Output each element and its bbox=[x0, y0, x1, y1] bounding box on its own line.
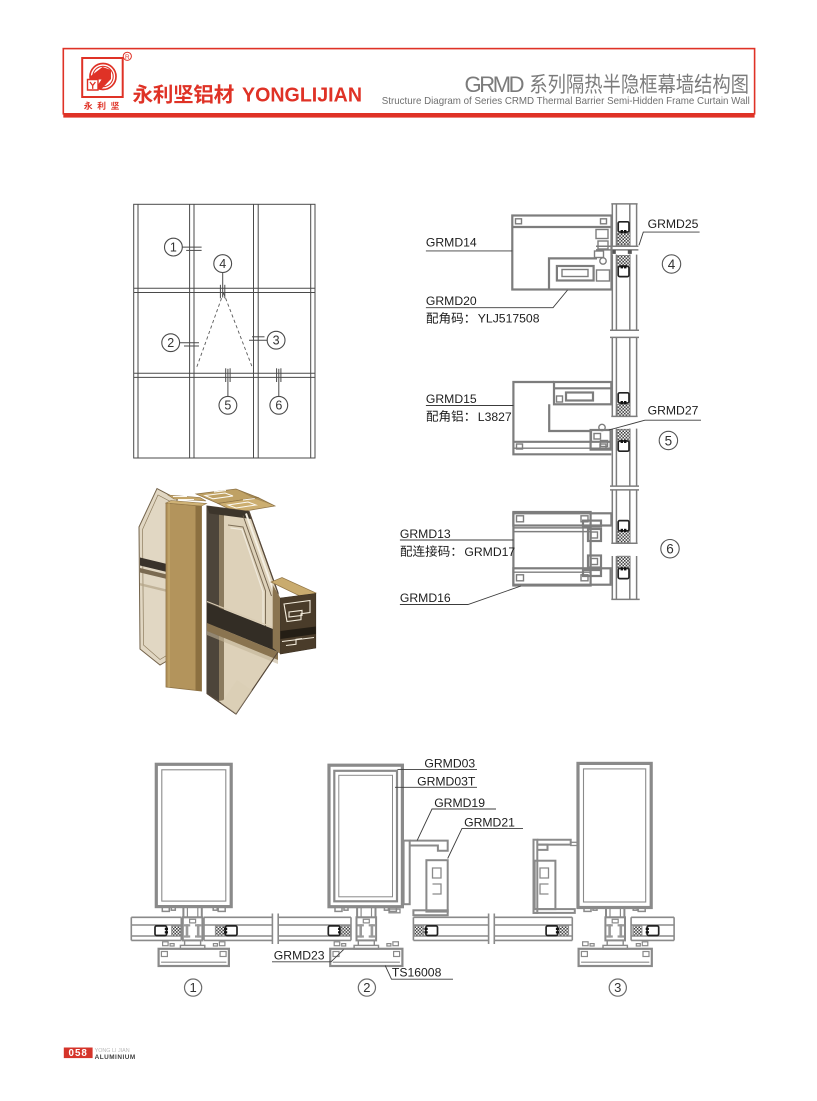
svg-text:1: 1 bbox=[189, 980, 196, 995]
svg-text:1: 1 bbox=[170, 241, 177, 255]
svg-text:GRMD15: GRMD15 bbox=[426, 392, 477, 406]
svg-text:5: 5 bbox=[224, 399, 231, 413]
svg-text:3: 3 bbox=[273, 334, 280, 348]
svg-text:4: 4 bbox=[668, 257, 676, 272]
svg-text:6: 6 bbox=[275, 399, 282, 413]
svg-text:GRMD14: GRMD14 bbox=[426, 235, 477, 249]
svg-text:L3827: L3827 bbox=[478, 410, 512, 424]
svg-text:R: R bbox=[125, 54, 130, 61]
svg-text:2: 2 bbox=[363, 980, 370, 995]
svg-text:YLJ517508: YLJ517508 bbox=[478, 312, 540, 326]
svg-text:GRMD25: GRMD25 bbox=[648, 217, 699, 231]
svg-text:3: 3 bbox=[614, 980, 621, 995]
svg-text:4: 4 bbox=[219, 257, 226, 271]
svg-text:ALUMINIUM: ALUMINIUM bbox=[95, 1054, 136, 1061]
svg-text:GRMD13: GRMD13 bbox=[400, 527, 451, 541]
svg-text:GRMD19: GRMD19 bbox=[434, 796, 485, 810]
svg-text:GRMD27: GRMD27 bbox=[648, 403, 699, 417]
svg-text:TS16008: TS16008 bbox=[392, 966, 442, 980]
svg-text:YONGLIJIAN: YONGLIJIAN bbox=[242, 84, 362, 107]
svg-text:GRMD16: GRMD16 bbox=[400, 591, 451, 605]
svg-text:2: 2 bbox=[167, 336, 174, 350]
svg-text:GRMD21: GRMD21 bbox=[464, 815, 515, 829]
svg-text:GRMD: GRMD bbox=[465, 72, 525, 97]
svg-text:5: 5 bbox=[665, 433, 673, 448]
svg-text:058: 058 bbox=[69, 1048, 88, 1059]
svg-text:Structure Diagram of Series CR: Structure Diagram of Series CRMD Thermal… bbox=[382, 96, 750, 107]
svg-text:GRMD03: GRMD03 bbox=[424, 757, 475, 771]
svg-text:GRMD23: GRMD23 bbox=[274, 948, 325, 962]
svg-text:6: 6 bbox=[666, 541, 674, 556]
svg-text:GRMD03T: GRMD03T bbox=[417, 775, 476, 789]
svg-text:GRMD17: GRMD17 bbox=[464, 545, 515, 559]
svg-text:GRMD20: GRMD20 bbox=[426, 294, 477, 308]
